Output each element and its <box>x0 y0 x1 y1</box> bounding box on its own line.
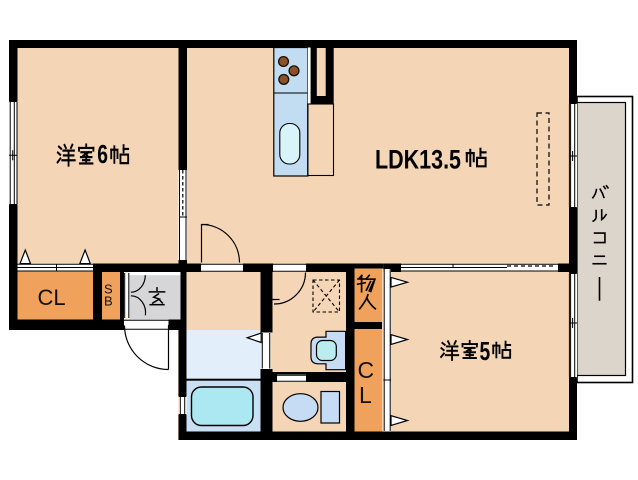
svg-text:L: L <box>359 382 372 408</box>
svg-text:B: B <box>104 293 113 308</box>
svg-text:CL: CL <box>38 285 66 310</box>
svg-text:LDK13.5: LDK13.5 <box>375 145 461 175</box>
svg-text:C: C <box>358 357 375 383</box>
svg-text:5: 5 <box>480 336 491 366</box>
svg-text:6: 6 <box>97 139 108 169</box>
